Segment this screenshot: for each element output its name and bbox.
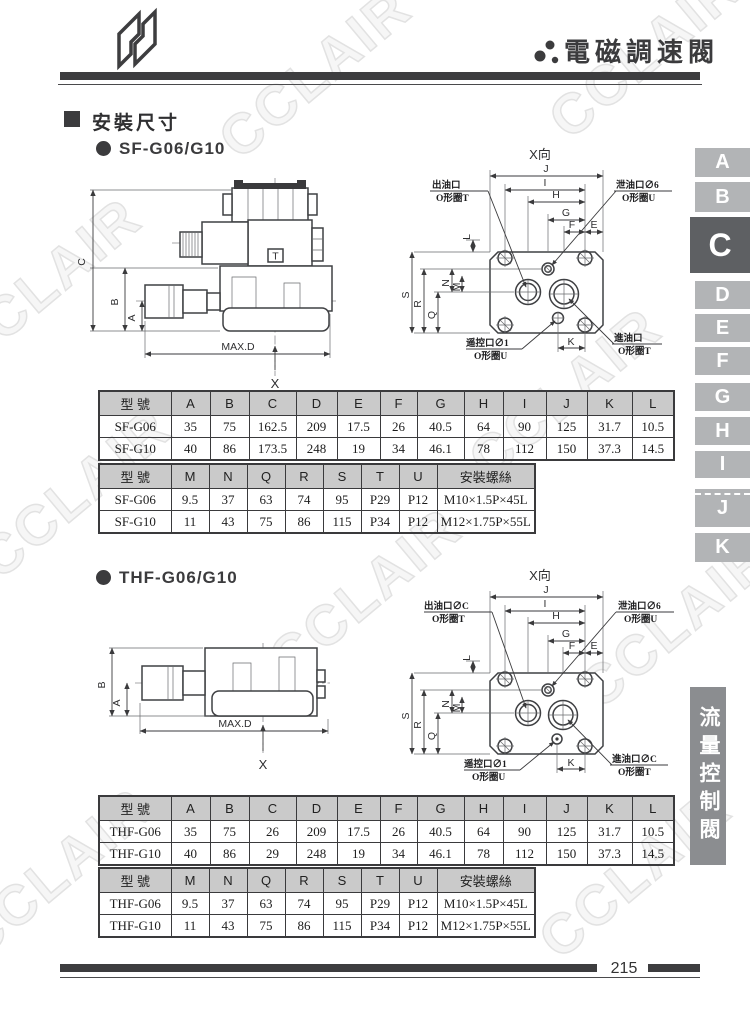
- footer-rule-right: [648, 964, 700, 972]
- sf-front-view-drawing: X向 J I H G F E: [400, 140, 700, 390]
- sf-dimension-table-1: 型 號ABCDEFGHIJKLSF-G063575162.520917.5264…: [98, 390, 675, 461]
- sf-subsection-title: SF-G06/G10: [119, 139, 225, 159]
- column-header: G: [417, 796, 464, 821]
- dim-label: M: [451, 283, 463, 292]
- value-cell: 74: [285, 489, 323, 511]
- column-header: 安裝螺絲: [437, 868, 535, 893]
- port-callout: O形圈U: [472, 771, 505, 783]
- side-tab-d: D: [695, 281, 750, 309]
- dim-label: E: [590, 640, 597, 652]
- value-cell: 75: [247, 511, 285, 534]
- dim-label: C: [76, 258, 88, 266]
- page-title: 電磁調速閥: [564, 32, 719, 69]
- dim-label: Q: [426, 732, 438, 740]
- dim-label: Q: [426, 311, 438, 319]
- side-tab-c-active: C: [690, 217, 750, 273]
- dim-label: A: [111, 699, 123, 706]
- side-tab-j: J: [695, 489, 750, 527]
- value-cell: 35: [171, 821, 210, 843]
- dim-label: J: [543, 163, 548, 175]
- model-cell: SF-G10: [99, 438, 171, 461]
- value-cell: 29: [249, 843, 296, 866]
- column-header: H: [464, 391, 503, 416]
- column-header: E: [337, 391, 380, 416]
- value-cell: 37: [209, 893, 247, 915]
- port-callout: O形圈T: [618, 345, 651, 357]
- dim-label: M: [451, 704, 463, 713]
- column-header: J: [546, 391, 587, 416]
- value-cell: P29: [361, 489, 399, 511]
- dim-label: T: [272, 251, 279, 263]
- column-header: F: [380, 796, 417, 821]
- side-tab-j-label: J: [717, 497, 728, 520]
- table-header-row: 型 號MNQRSTU安裝螺絲: [99, 868, 535, 893]
- column-header: S: [323, 464, 361, 489]
- dim-label: G: [562, 628, 570, 640]
- dim-label: K: [567, 757, 574, 769]
- port-callout: 進油口∅C: [612, 753, 657, 765]
- column-header: 型 號: [99, 464, 171, 489]
- value-cell: 173.5: [249, 438, 296, 461]
- value-cell: M10×1.5P×45L: [437, 893, 535, 915]
- dim-label: K: [567, 336, 574, 348]
- value-cell: 248: [296, 843, 337, 866]
- value-cell: P12: [399, 915, 437, 938]
- dim-label: S: [400, 291, 412, 298]
- side-tab-i: I: [695, 451, 750, 478]
- value-cell: 95: [323, 893, 361, 915]
- column-header: M: [171, 464, 209, 489]
- column-header: L: [632, 796, 674, 821]
- column-header: U: [399, 868, 437, 893]
- dim-label: H: [552, 610, 560, 622]
- side-tab-e: E: [695, 314, 750, 342]
- cclair-logo-icon: [105, 6, 169, 72]
- view-title: X向: [529, 568, 551, 583]
- dim-label: L: [461, 655, 473, 661]
- value-cell: 17.5: [337, 416, 380, 438]
- table-row: THF-G10408629248193446.17811215037.314.5: [99, 843, 674, 866]
- header-rule: [60, 72, 700, 80]
- model-cell: SF-G10: [99, 511, 171, 534]
- value-cell: P34: [361, 511, 399, 534]
- dim-label: A: [126, 314, 138, 321]
- value-cell: 86: [210, 843, 249, 866]
- footer-rule-thin: [60, 977, 700, 978]
- value-cell: 86: [285, 915, 323, 938]
- table-row: SF-G1011437586115P34P12M12×1.75P×55L: [99, 511, 535, 534]
- port-callout: 遥控口∅1: [466, 337, 509, 349]
- dim-label: F: [569, 219, 575, 231]
- value-cell: M12×1.75P×55L: [437, 915, 535, 938]
- footer-rule-left: [60, 964, 597, 972]
- thf-side-view-drawing: B A MAX.D X: [95, 593, 345, 793]
- column-header: 型 號: [99, 391, 171, 416]
- column-header: C: [249, 391, 296, 416]
- value-cell: 209: [296, 821, 337, 843]
- side-tab-g: G: [695, 383, 750, 411]
- value-cell: 34: [380, 843, 417, 866]
- dim-label: I: [544, 598, 547, 610]
- port-callout: 出油口: [432, 179, 461, 191]
- column-header: B: [210, 391, 249, 416]
- dim-label: G: [562, 207, 570, 219]
- value-cell: 34: [380, 438, 417, 461]
- value-cell: 9.5: [171, 489, 209, 511]
- port-callout: 出油口∅C: [424, 600, 469, 612]
- model-cell: THF-G10: [99, 915, 171, 938]
- value-cell: 64: [464, 416, 503, 438]
- column-header: F: [380, 391, 417, 416]
- value-cell: 75: [247, 915, 285, 938]
- value-cell: 125: [546, 416, 587, 438]
- table-header-row: 型 號ABCDEFGHIJKL: [99, 391, 674, 416]
- value-cell: 75: [210, 821, 249, 843]
- column-header: S: [323, 868, 361, 893]
- port-callout: O形圈U: [622, 192, 655, 204]
- table-header-row: 型 號ABCDEFGHIJKL: [99, 796, 674, 821]
- column-header: 型 號: [99, 796, 171, 821]
- column-header: A: [171, 391, 210, 416]
- value-cell: 40: [171, 843, 210, 866]
- value-cell: 37.3: [587, 843, 632, 866]
- value-cell: 43: [209, 511, 247, 534]
- port-callout: O形圈U: [624, 613, 657, 625]
- tab-fold-dash: [695, 493, 750, 495]
- bullet-icon: [96, 141, 111, 156]
- port-callout: O形圈T: [432, 613, 465, 625]
- value-cell: 74: [285, 893, 323, 915]
- value-cell: 95: [323, 489, 361, 511]
- value-cell: 112: [503, 843, 546, 866]
- port-callout: 遥控口∅1: [464, 758, 507, 770]
- port-callout: O形圈T: [436, 192, 469, 204]
- value-cell: 40: [171, 438, 210, 461]
- value-cell: 26: [380, 821, 417, 843]
- value-cell: 162.5: [249, 416, 296, 438]
- value-cell: 14.5: [632, 438, 674, 461]
- model-cell: SF-G06: [99, 489, 171, 511]
- value-cell: 37.3: [587, 438, 632, 461]
- value-cell: 115: [323, 915, 361, 938]
- dim-label: F: [569, 640, 575, 652]
- model-cell: THF-G10: [99, 843, 171, 866]
- dim-label: L: [461, 234, 473, 240]
- table-header-row: 型 號MNQRSTU安裝螺絲: [99, 464, 535, 489]
- thf-subsection-title: THF-G06/G10: [119, 568, 238, 588]
- sf-side-view-drawing: T C B A MAX.D X: [70, 158, 370, 393]
- column-header: J: [546, 796, 587, 821]
- value-cell: P12: [399, 489, 437, 511]
- value-cell: 90: [503, 416, 546, 438]
- value-cell: 11: [171, 511, 209, 534]
- side-tab-f: F: [695, 347, 750, 375]
- value-cell: 14.5: [632, 843, 674, 866]
- column-header: C: [249, 796, 296, 821]
- dim-label: MAX.D: [218, 718, 252, 730]
- value-cell: P12: [399, 893, 437, 915]
- dim-label: B: [109, 298, 121, 305]
- value-cell: 19: [337, 843, 380, 866]
- dim-label: E: [590, 219, 597, 231]
- value-cell: 9.5: [171, 893, 209, 915]
- value-cell: 26: [249, 821, 296, 843]
- value-cell: 90: [503, 821, 546, 843]
- value-cell: 40.5: [417, 416, 464, 438]
- value-cell: 86: [285, 511, 323, 534]
- category-label: 流量控制閥: [690, 687, 726, 865]
- side-tab-a: A: [695, 148, 750, 177]
- sf-dimension-table-2: 型 號MNQRSTU安裝螺絲SF-G069.537637495P29P12M10…: [98, 463, 536, 534]
- column-header: Q: [247, 868, 285, 893]
- dim-label: X: [271, 376, 280, 391]
- page-number: 215: [602, 960, 646, 978]
- value-cell: 86: [210, 438, 249, 461]
- column-header: K: [587, 796, 632, 821]
- value-cell: 37: [209, 489, 247, 511]
- port-callout: O形圈T: [618, 766, 651, 778]
- value-cell: 112: [503, 438, 546, 461]
- dim-label: B: [96, 681, 108, 688]
- value-cell: 43: [209, 915, 247, 938]
- value-cell: 31.7: [587, 821, 632, 843]
- dim-label: R: [412, 721, 424, 729]
- dim-label: X: [259, 757, 268, 772]
- value-cell: M12×1.75P×55L: [437, 511, 535, 534]
- value-cell: 10.5: [632, 416, 674, 438]
- column-header: Q: [247, 464, 285, 489]
- thf-dimension-table-2: 型 號MNQRSTU安裝螺絲THF-G069.537637495P29P12M1…: [98, 867, 536, 938]
- column-header: T: [361, 464, 399, 489]
- value-cell: 150: [546, 438, 587, 461]
- column-header: R: [285, 464, 323, 489]
- column-header: T: [361, 868, 399, 893]
- value-cell: 35: [171, 416, 210, 438]
- value-cell: 19: [337, 438, 380, 461]
- value-cell: 31.7: [587, 416, 632, 438]
- view-title: X向: [529, 147, 551, 162]
- dim-label: J: [543, 584, 548, 596]
- model-cell: THF-G06: [99, 893, 171, 915]
- side-tab-h: H: [695, 417, 750, 445]
- value-cell: P34: [361, 915, 399, 938]
- bullet-icon: [96, 570, 111, 585]
- value-cell: 63: [247, 893, 285, 915]
- column-header: L: [632, 391, 674, 416]
- table-row: THF-G0635752620917.52640.5649012531.710.…: [99, 821, 674, 843]
- column-header: R: [285, 868, 323, 893]
- column-header: D: [296, 391, 337, 416]
- column-header: I: [503, 391, 546, 416]
- table-row: SF-G104086173.5248193446.17811215037.314…: [99, 438, 674, 461]
- thf-dimension-table-1: 型 號ABCDEFGHIJKLTHF-G0635752620917.52640.…: [98, 795, 675, 866]
- column-header: N: [209, 464, 247, 489]
- watermark: CCLAIR: [206, 0, 424, 171]
- column-header: M: [171, 868, 209, 893]
- table-row: SF-G063575162.520917.52640.5649012531.71…: [99, 416, 674, 438]
- value-cell: 78: [464, 843, 503, 866]
- value-cell: M10×1.5P×45L: [437, 489, 535, 511]
- value-cell: P12: [399, 511, 437, 534]
- dim-label: H: [552, 189, 560, 201]
- port-callout: 泄油口∅6: [616, 179, 659, 191]
- catalog-page: CCLAIR CCLAIR CCLAIR CCLAIR CCLAIR CCLAI…: [0, 0, 750, 1018]
- value-cell: 46.1: [417, 843, 464, 866]
- value-cell: 125: [546, 821, 587, 843]
- value-cell: 11: [171, 915, 209, 938]
- port-callout: 進油口: [614, 332, 643, 344]
- column-header: 安裝螺絲: [437, 464, 535, 489]
- side-tab-k: K: [695, 533, 750, 562]
- column-header: D: [296, 796, 337, 821]
- dim-label: R: [412, 300, 424, 308]
- value-cell: 64: [464, 821, 503, 843]
- value-cell: 75: [210, 416, 249, 438]
- value-cell: 10.5: [632, 821, 674, 843]
- column-header: H: [464, 796, 503, 821]
- section-title: 安裝尺寸: [92, 108, 180, 135]
- value-cell: 115: [323, 511, 361, 534]
- model-cell: THF-G06: [99, 821, 171, 843]
- column-header: G: [417, 391, 464, 416]
- value-cell: 26: [380, 416, 417, 438]
- value-cell: 46.1: [417, 438, 464, 461]
- value-cell: 209: [296, 416, 337, 438]
- column-header: K: [587, 391, 632, 416]
- model-cell: SF-G06: [99, 416, 171, 438]
- column-header: B: [210, 796, 249, 821]
- value-cell: 63: [247, 489, 285, 511]
- column-header: N: [209, 868, 247, 893]
- table-row: THF-G069.537637495P29P12M10×1.5P×45L: [99, 893, 535, 915]
- header-rule-thin: [58, 84, 702, 85]
- thf-front-view-drawing: X向 J I H G F: [400, 563, 700, 798]
- dim-label: I: [544, 177, 547, 189]
- port-callout: O形圈U: [474, 350, 507, 362]
- port-callout: 泄油口∅6: [618, 600, 661, 612]
- column-header: E: [337, 796, 380, 821]
- side-tab-b: B: [695, 182, 750, 212]
- dots-icon: [534, 38, 560, 66]
- value-cell: 78: [464, 438, 503, 461]
- value-cell: 150: [546, 843, 587, 866]
- dim-label: S: [400, 712, 412, 719]
- table-row: THF-G1011437586115P34P12M12×1.75P×55L: [99, 915, 535, 938]
- value-cell: P29: [361, 893, 399, 915]
- column-header: A: [171, 796, 210, 821]
- value-cell: 40.5: [417, 821, 464, 843]
- value-cell: 17.5: [337, 821, 380, 843]
- value-cell: 248: [296, 438, 337, 461]
- column-header: U: [399, 464, 437, 489]
- column-header: I: [503, 796, 546, 821]
- dim-label: MAX.D: [221, 341, 255, 353]
- column-header: 型 號: [99, 868, 171, 893]
- table-row: SF-G069.537637495P29P12M10×1.5P×45L: [99, 489, 535, 511]
- section-marker: [64, 111, 80, 127]
